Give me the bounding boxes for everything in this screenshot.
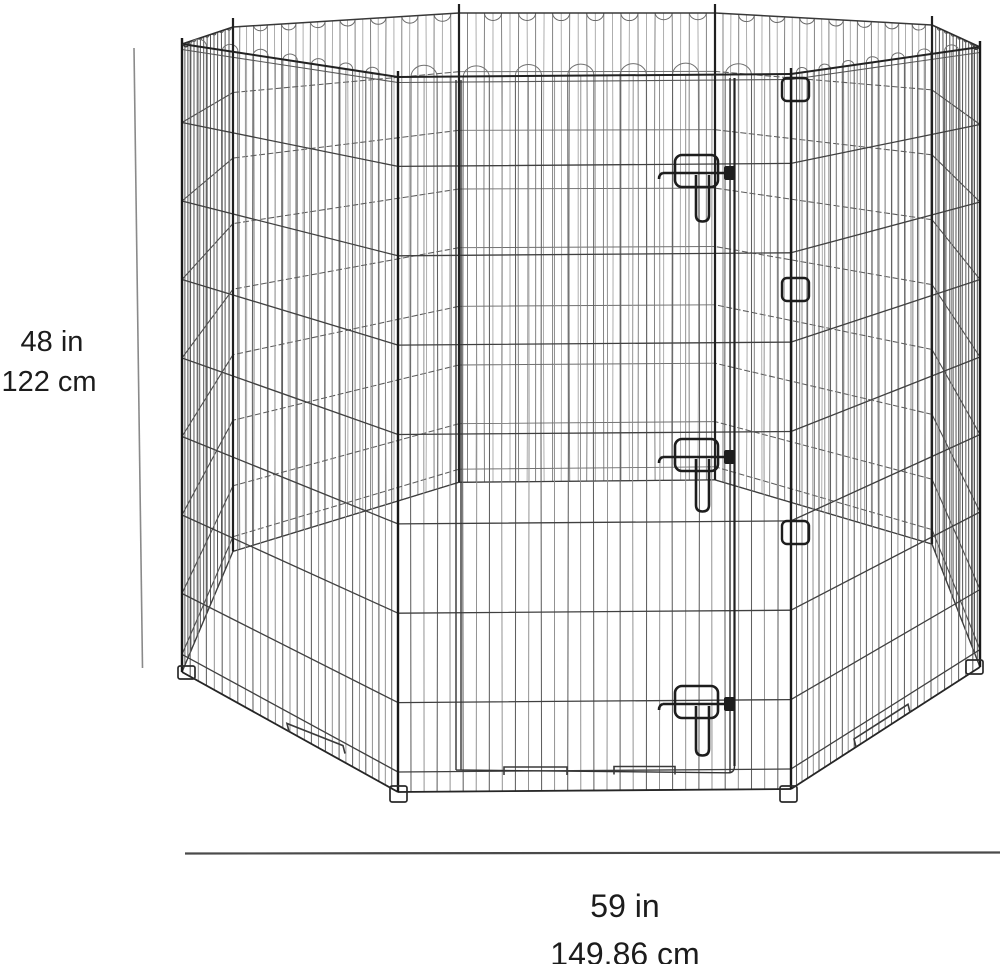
svg-text:122 cm: 122 cm xyxy=(1,366,96,398)
svg-text:59 in: 59 in xyxy=(590,888,659,924)
svg-text:149.86 cm: 149.86 cm xyxy=(550,936,699,964)
svg-text:48 in: 48 in xyxy=(21,326,84,358)
